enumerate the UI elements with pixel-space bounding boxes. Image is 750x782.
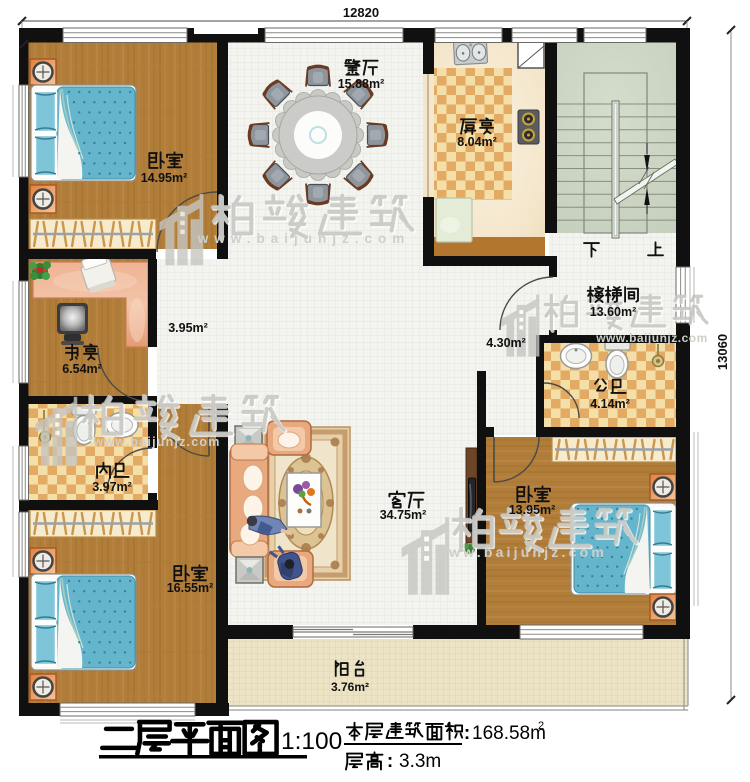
svg-text:6.54m²: 6.54m² [62,362,102,376]
svg-text:168.58m: 168.58m [472,723,546,744]
svg-text:12820: 12820 [343,5,379,20]
svg-text:14.95m²: 14.95m² [141,171,188,185]
svg-text:www.baijunjz.com: www.baijunjz.com [92,435,220,449]
svg-text:16.55m²: 16.55m² [167,581,214,595]
svg-text:13.95m²: 13.95m² [509,503,556,517]
svg-text:13060: 13060 [715,334,730,370]
svg-text::: : [387,751,393,772]
svg-text:www.baijunjz.com: www.baijunjz.com [595,331,708,345]
svg-text:15.88m²: 15.88m² [338,77,385,91]
svg-text:4.14m²: 4.14m² [590,397,630,411]
svg-text:3.95m²: 3.95m² [168,321,208,335]
svg-text:34.75m²: 34.75m² [380,508,427,522]
svg-text:www.baijunjz.com: www.baijunjz.com [197,231,411,246]
svg-text:13.60m²: 13.60m² [590,305,637,319]
svg-text::: : [464,723,470,744]
svg-text:3.76m²: 3.76m² [331,680,369,694]
svg-text:3.3m: 3.3m [399,751,441,772]
svg-text:2: 2 [538,720,544,732]
svg-text:3.97m²: 3.97m² [92,480,132,494]
svg-text:8.04m²: 8.04m² [457,135,497,149]
svg-text:www.baijunjz.com: www.baijunjz.com [434,544,607,560]
svg-text:1:100: 1:100 [281,728,342,755]
svg-text:4.30m²: 4.30m² [486,336,526,350]
